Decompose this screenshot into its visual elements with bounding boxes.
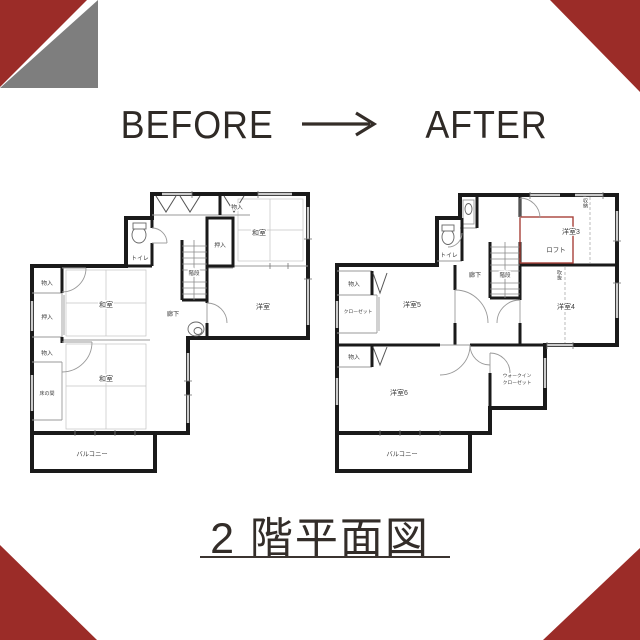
room-label-washitsu-bottom: 和室 bbox=[99, 374, 113, 383]
room-label-room6: 洋室6 bbox=[390, 388, 408, 397]
room-label-entry-storage: 物入 bbox=[231, 203, 243, 211]
room-label-monoire-lower: 物入 bbox=[41, 349, 53, 357]
room-label-washitsu-mid: 和室 bbox=[99, 300, 113, 309]
red-triangle bbox=[0, 0, 87, 87]
before-floor-plan: トイレ 物入 押入 和室 階段 洋室 廊下 物入 押入 和室 物入 床の間 和室… bbox=[30, 183, 315, 475]
after-plan-drawing: トイレ 廊下 階段 洋室3 ロフト 収納 洋室4 吹抜 物入 クローゼット 洋室… bbox=[335, 183, 625, 475]
before-heading: BEFORE bbox=[121, 100, 274, 152]
room-label-oshiire-top: 押入 bbox=[214, 241, 226, 249]
room-label-toilet: トイレ bbox=[440, 253, 458, 259]
room-label-washitsu-top: 和室 bbox=[252, 228, 266, 237]
room-label-room5: 洋室5 bbox=[403, 300, 421, 309]
room-label-corridor: 廊下 bbox=[469, 271, 481, 279]
gray-triangle bbox=[0, 0, 98, 88]
corner-decoration-top-right bbox=[550, 0, 640, 92]
room-label-monoire-left: 物入 bbox=[41, 279, 53, 287]
corner-decoration-top-left bbox=[0, 0, 98, 88]
after-floor-plan: トイレ 廊下 階段 洋室3 ロフト 収納 洋室4 吹抜 物入 クローゼット 洋室… bbox=[335, 183, 625, 475]
room-label-balcony: バルコニー bbox=[386, 450, 417, 458]
red-triangle bbox=[550, 0, 640, 92]
room-label-balcony: バルコニー bbox=[76, 450, 107, 458]
room-label-oshiire-left: 押入 bbox=[41, 313, 53, 321]
room-label-monoire-lower: 物入 bbox=[348, 353, 360, 361]
right-arrow-icon bbox=[300, 110, 382, 143]
room-label-room4: 洋室4 bbox=[557, 302, 575, 311]
title-underline bbox=[200, 556, 450, 558]
room-label-tokonoma: 床の間 bbox=[39, 390, 54, 397]
before-plan-drawing: トイレ 物入 押入 和室 階段 洋室 廊下 物入 押入 和室 物入 床の間 和室… bbox=[30, 183, 315, 475]
room-label-loft: ロフト bbox=[546, 246, 566, 254]
room-label-wic-line1: ウォークイン bbox=[503, 372, 532, 379]
note-label-void: 吹抜 bbox=[556, 269, 562, 281]
room-label-wic-line2: クローゼット bbox=[503, 379, 532, 386]
room-label-room3: 洋室3 bbox=[562, 227, 580, 236]
room-label-toilet: トイレ bbox=[131, 256, 149, 262]
room-label-stairs: 階段 bbox=[188, 269, 200, 277]
after-heading: AFTER bbox=[425, 100, 547, 152]
room-label-closet: クローゼット bbox=[344, 308, 373, 315]
room-label-stairs: 階段 bbox=[499, 271, 511, 279]
room-label-corridor: 廊下 bbox=[167, 310, 179, 318]
note-label-storage: 収納 bbox=[582, 197, 588, 209]
room-label-monoire-left: 物入 bbox=[348, 280, 360, 288]
room-label-yoshitsu: 洋室 bbox=[256, 302, 270, 311]
